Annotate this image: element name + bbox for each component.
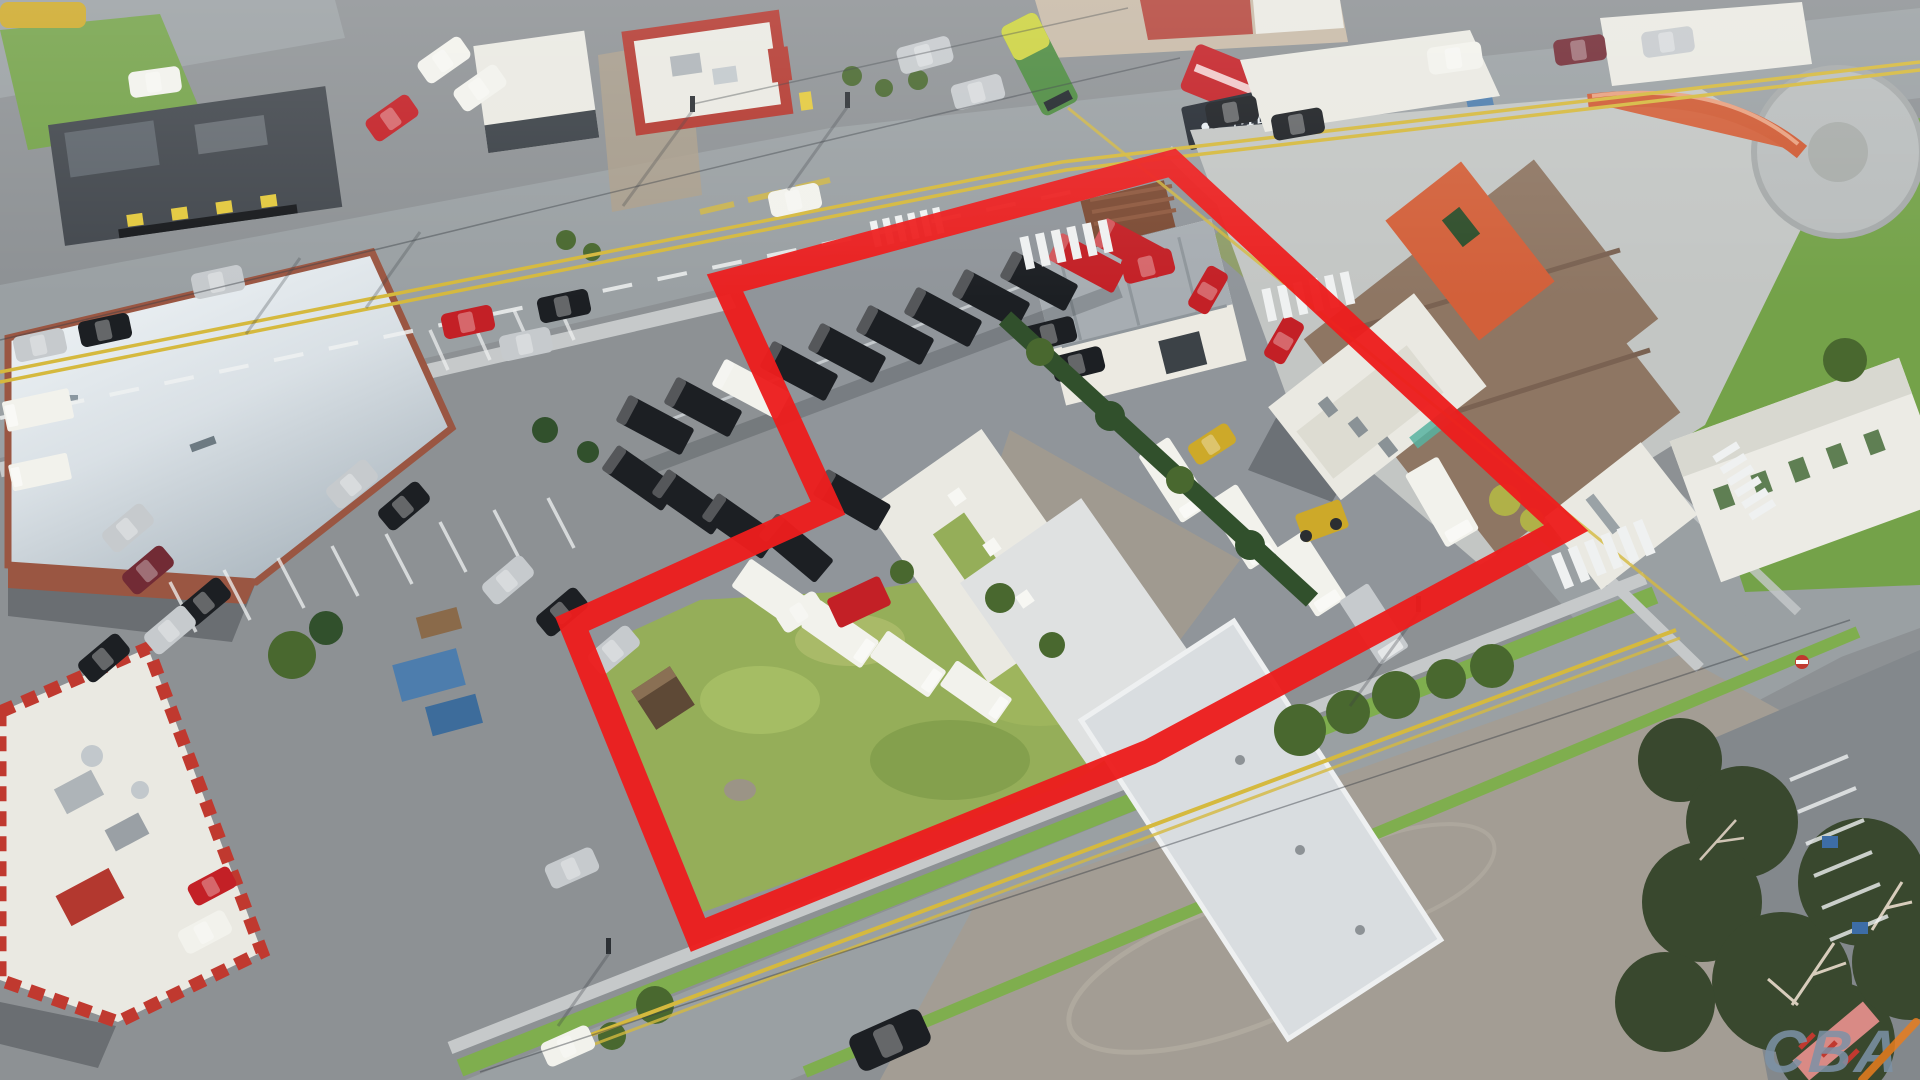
aerial-photo: Mill Creek	[0, 0, 1920, 1080]
stump	[724, 779, 756, 801]
tree-cluster-se	[1615, 952, 1715, 1052]
cba-watermark: CBA	[1760, 1018, 1916, 1080]
courtyard-tree	[985, 583, 1015, 613]
handicap-marking	[1822, 836, 1838, 848]
hvac-fan	[81, 745, 103, 767]
watermark-text: CBA	[1760, 1018, 1904, 1080]
lawn-tree	[1823, 338, 1867, 382]
parking-lot-tree	[309, 611, 343, 645]
handicap-marking	[1852, 922, 1868, 934]
hedge-bush	[1095, 401, 1125, 431]
loader-wheel	[1300, 530, 1312, 542]
tree-row	[1470, 644, 1514, 688]
courtyard-tree	[890, 560, 914, 584]
roof-drain	[1355, 925, 1365, 935]
grass-texture	[870, 720, 1030, 800]
tree-row	[1326, 690, 1370, 734]
tree-row	[1274, 704, 1326, 756]
roof-drain	[1295, 845, 1305, 855]
roof-drain	[1235, 755, 1245, 765]
tree-row	[1372, 671, 1420, 719]
courtyard-tree	[1039, 632, 1065, 658]
loader-wheel	[1330, 518, 1342, 530]
bush	[532, 417, 558, 443]
hedge-bush	[1166, 466, 1194, 494]
hedge-bush	[1026, 338, 1054, 366]
tree-row	[1426, 659, 1466, 699]
hvac-fan	[131, 781, 149, 799]
grass-texture	[700, 666, 820, 734]
no-entry-bar	[1796, 660, 1808, 664]
bush	[577, 441, 599, 463]
hedge-bush	[1235, 530, 1265, 560]
parking-lot-tree	[268, 631, 316, 679]
atmospheric-haze	[0, 0, 1920, 300]
